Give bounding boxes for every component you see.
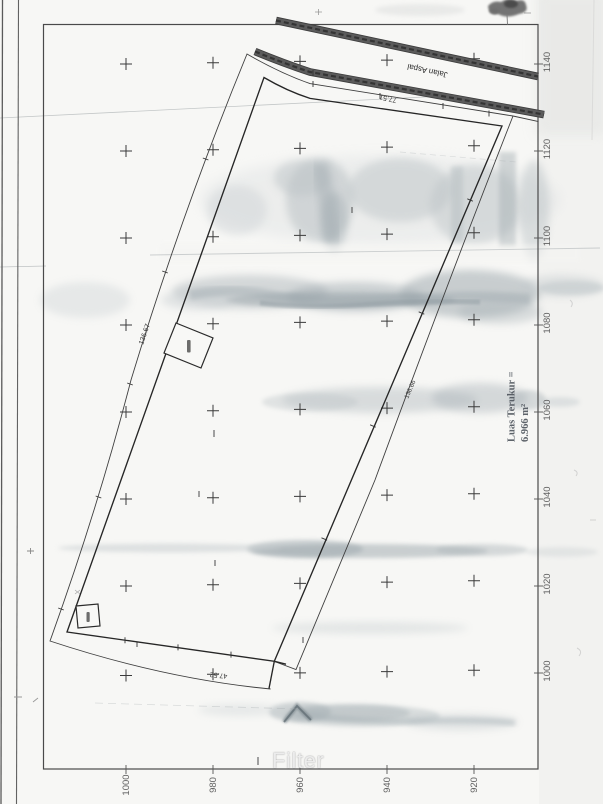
svg-text:1000: 1000 (121, 774, 132, 795)
svg-text:1040: 1040 (542, 486, 553, 507)
svg-text:940: 940 (382, 777, 393, 793)
svg-text:1100: 1100 (542, 226, 553, 246)
svg-text:1120: 1120 (542, 139, 553, 159)
svg-text:1000: 1000 (542, 660, 553, 681)
svg-text:1060: 1060 (542, 399, 553, 420)
svg-text:920: 920 (469, 777, 480, 793)
svg-text:980: 980 (208, 777, 219, 793)
svg-text:1080: 1080 (542, 312, 553, 333)
svg-text:960: 960 (295, 777, 306, 793)
svg-text:1020: 1020 (542, 573, 553, 594)
svg-text:Luas Terukur =: Luas Terukur = (507, 371, 518, 442)
svg-text:6.966 m²: 6.966 m² (520, 404, 531, 442)
svg-text:1140: 1140 (542, 52, 553, 72)
